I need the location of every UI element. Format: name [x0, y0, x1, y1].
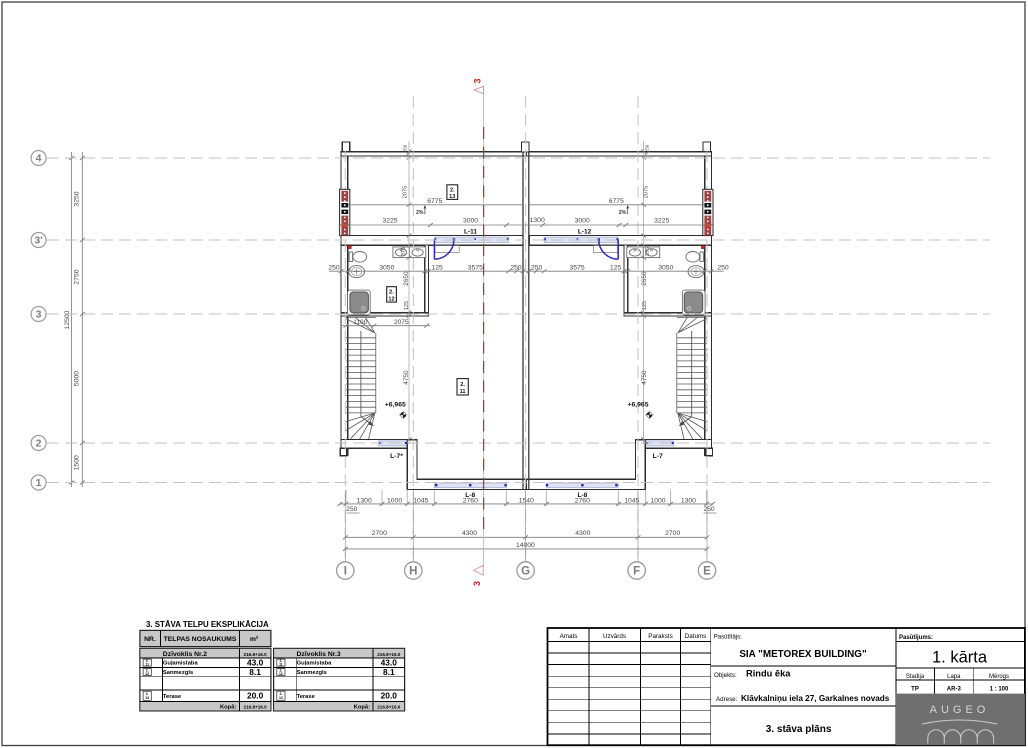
svg-text:1300: 1300 [357, 497, 372, 504]
svg-text:8.1: 8.1 [249, 667, 261, 677]
svg-text:NR.: NR. [144, 636, 156, 643]
svg-text:2650: 2650 [403, 271, 410, 286]
svg-text:250: 250 [346, 506, 357, 513]
svg-text:TELPAS NOSAUKUMS: TELPAS NOSAUKUMS [164, 636, 237, 643]
svg-text:250: 250 [645, 144, 650, 152]
svg-text:+6,965: +6,965 [628, 401, 649, 408]
svg-text:L-11: L-11 [464, 228, 477, 235]
svg-text:5000: 5000 [73, 371, 80, 386]
svg-text:1540: 1540 [519, 497, 534, 504]
svg-text:G: G [521, 566, 530, 578]
svg-text:I: I [344, 566, 347, 578]
svg-text:4750: 4750 [641, 370, 648, 385]
svg-text:Paraksts: Paraksts [648, 633, 673, 640]
svg-text:Sanmezgls: Sanmezgls [297, 670, 327, 676]
svg-text:Klāvkalniņu iela 27, Garkalnes: Klāvkalniņu iela 27, Garkalnes novads [741, 694, 890, 703]
svg-text:L-12: L-12 [578, 228, 592, 235]
svg-text:SIA "METOREX BUILDING": SIA "METOREX BUILDING" [739, 649, 867, 660]
svg-text:13: 13 [279, 696, 283, 700]
svg-text:12: 12 [279, 672, 283, 676]
svg-text:216.8+16.0: 216.8+16.0 [377, 704, 401, 709]
svg-text:2075: 2075 [644, 186, 650, 198]
svg-text:2.: 2. [389, 289, 394, 295]
svg-text:6775: 6775 [427, 198, 442, 205]
svg-text:1045: 1045 [413, 497, 428, 504]
svg-text:125: 125 [404, 301, 410, 310]
svg-text:4300: 4300 [575, 530, 590, 537]
svg-text:2750: 2750 [73, 269, 80, 284]
svg-text:3575: 3575 [570, 264, 585, 271]
svg-text:3050: 3050 [379, 264, 394, 271]
svg-text:2700: 2700 [372, 530, 387, 537]
svg-text:Mērogs: Mērogs [989, 674, 1009, 680]
svg-text:1100: 1100 [353, 319, 368, 326]
svg-text:250: 250 [531, 264, 543, 271]
svg-text:Amats: Amats [560, 633, 578, 640]
svg-text:12500: 12500 [64, 310, 71, 329]
svg-text:Stadija: Stadija [906, 674, 925, 680]
svg-text:Rindu ēka: Rindu ēka [746, 669, 791, 679]
svg-text:Dzīvoklis Nr.2: Dzīvoklis Nr.2 [163, 651, 207, 658]
svg-text:11: 11 [279, 663, 283, 667]
svg-text:Pasūtījums:: Pasūtījums: [899, 635, 933, 641]
svg-text:Adrese:: Adrese: [716, 696, 738, 703]
svg-text:2700: 2700 [665, 530, 680, 537]
svg-text:13: 13 [145, 696, 149, 700]
svg-text:1000: 1000 [387, 497, 402, 504]
svg-text:4300: 4300 [462, 530, 477, 537]
svg-text:Uzvārds: Uzvārds [603, 633, 626, 640]
svg-text:4750: 4750 [403, 370, 410, 385]
svg-text:1045: 1045 [624, 497, 639, 504]
svg-text:AR-3: AR-3 [947, 686, 962, 692]
svg-text:Terase: Terase [297, 694, 316, 700]
svg-text:3575: 3575 [468, 264, 483, 271]
svg-text:3250: 3250 [73, 191, 80, 206]
svg-text:2075: 2075 [403, 186, 409, 198]
svg-text:2.: 2. [450, 187, 455, 193]
svg-text:125: 125 [431, 264, 443, 271]
svg-text:Datums: Datums [685, 633, 707, 640]
svg-text:3225: 3225 [654, 218, 669, 225]
svg-text:Pasūtītājs:: Pasūtītājs: [714, 635, 742, 641]
svg-text:Lapa: Lapa [947, 674, 961, 680]
svg-text:20.0: 20.0 [247, 691, 264, 701]
svg-text:3: 3 [472, 78, 482, 83]
svg-text:2.: 2. [460, 382, 465, 388]
svg-text:8.1: 8.1 [383, 667, 395, 677]
svg-text:Kopā:: Kopā: [354, 705, 370, 711]
svg-text:1000: 1000 [650, 497, 665, 504]
svg-text:2650: 2650 [641, 271, 648, 286]
svg-text:11: 11 [460, 389, 466, 395]
svg-text:L-7: L-7 [653, 453, 663, 460]
svg-text:Terase: Terase [163, 694, 182, 700]
svg-text:1300: 1300 [530, 217, 545, 224]
svg-text:250: 250 [717, 264, 729, 271]
svg-text:125: 125 [642, 301, 648, 310]
svg-text:3. stāva plāns: 3. stāva plāns [766, 724, 832, 735]
svg-text:2760: 2760 [463, 497, 478, 504]
svg-text:3: 3 [472, 581, 482, 586]
svg-text:250: 250 [704, 506, 715, 513]
svg-text:4: 4 [36, 153, 42, 165]
svg-text:2: 2 [36, 438, 42, 450]
svg-text:375: 375 [401, 247, 407, 256]
svg-text:1 : 100: 1 : 100 [990, 686, 1009, 692]
svg-text:+6,965: +6,965 [385, 401, 406, 408]
svg-text:Guļamistaba: Guļamistaba [297, 661, 333, 667]
svg-text:375: 375 [645, 247, 651, 256]
svg-text:L-7*: L-7* [390, 453, 403, 460]
svg-text:Guļamistaba: Guļamistaba [163, 661, 199, 667]
svg-text:2%: 2% [619, 210, 627, 216]
svg-text:11: 11 [145, 663, 149, 667]
svg-text:1500: 1500 [73, 455, 80, 470]
svg-text:2075: 2075 [394, 319, 409, 326]
svg-text:3000: 3000 [463, 218, 478, 225]
svg-text:13: 13 [449, 194, 455, 200]
svg-text:Kopā:: Kopā: [220, 705, 236, 711]
svg-text:1. kārta: 1. kārta [932, 649, 988, 667]
svg-text:3050: 3050 [658, 264, 673, 271]
svg-text:250: 250 [402, 144, 407, 152]
svg-text:3225: 3225 [382, 218, 397, 225]
svg-text:12: 12 [388, 296, 394, 302]
svg-text:E: E [703, 566, 711, 578]
svg-text:1: 1 [36, 477, 42, 489]
svg-text:216.8+16.0: 216.8+16.0 [244, 704, 268, 709]
svg-text:Objekts:: Objekts: [714, 672, 737, 679]
svg-text:m²: m² [250, 636, 259, 643]
svg-text:Dzīvoklis Nr.3: Dzīvoklis Nr.3 [296, 651, 340, 658]
svg-text:3': 3' [34, 235, 42, 247]
svg-text:216.8+16.0: 216.8+16.0 [377, 652, 401, 657]
svg-text:20.0: 20.0 [381, 691, 398, 701]
svg-text:TP: TP [911, 686, 919, 692]
svg-text:F: F [633, 566, 640, 578]
svg-text:Sanmezgls: Sanmezgls [163, 670, 193, 676]
svg-text:3. STĀVA TELPU EKSPLIKĀCIJA: 3. STĀVA TELPU EKSPLIKĀCIJA [146, 620, 269, 629]
svg-text:2760: 2760 [575, 497, 590, 504]
svg-text:2%: 2% [416, 210, 424, 216]
svg-text:3000: 3000 [575, 218, 590, 225]
svg-text:AUGEO: AUGEO [930, 704, 990, 716]
svg-text:H: H [409, 566, 417, 578]
svg-text:250: 250 [510, 264, 522, 271]
svg-text:3: 3 [36, 309, 42, 321]
svg-text:216.8+16.0: 216.8+16.0 [244, 652, 268, 657]
svg-text:1300: 1300 [681, 497, 696, 504]
svg-text:12: 12 [145, 672, 149, 676]
svg-text:125: 125 [610, 264, 622, 271]
svg-text:6775: 6775 [609, 198, 624, 205]
svg-text:250: 250 [328, 264, 340, 271]
